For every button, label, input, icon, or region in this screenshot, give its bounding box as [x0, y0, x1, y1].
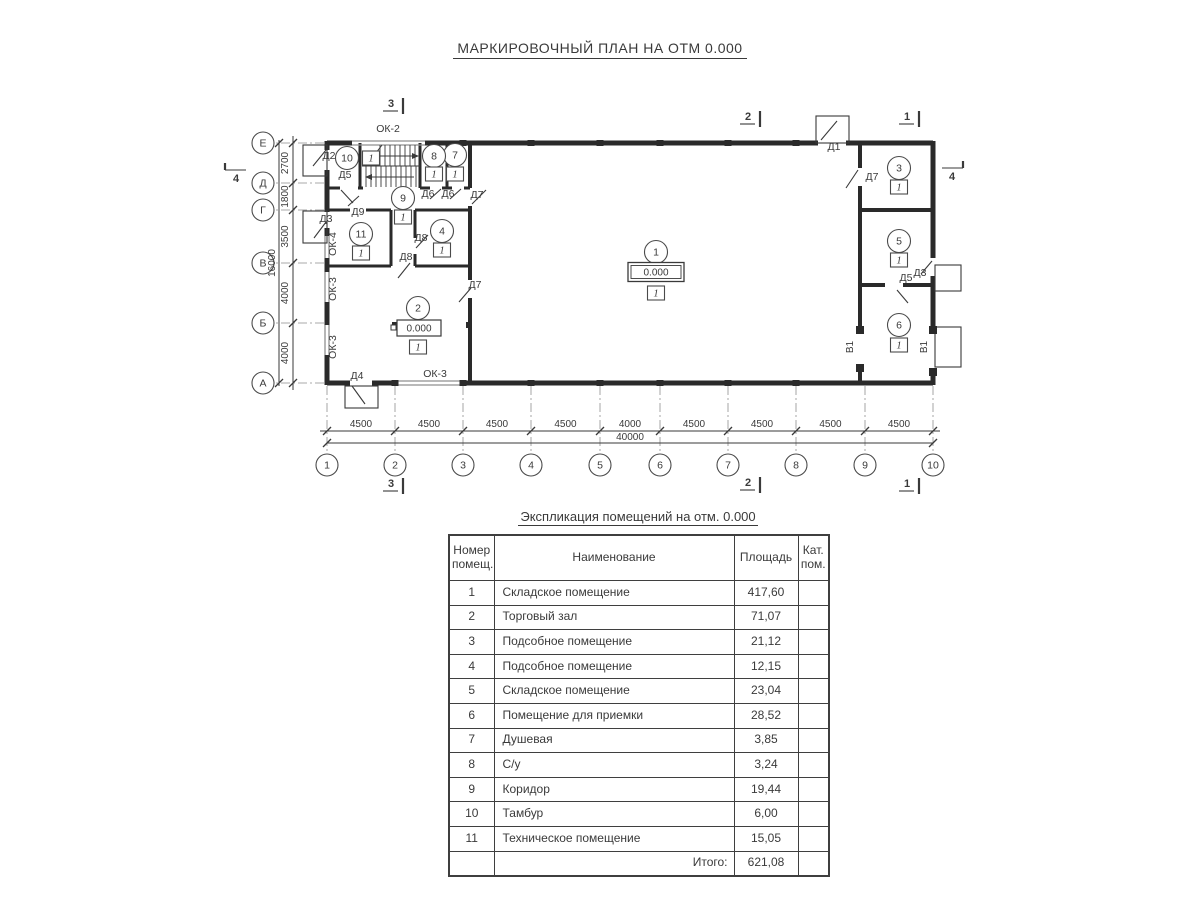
section-mark-number: 3 — [388, 478, 394, 490]
door-label: Д7 — [866, 171, 879, 183]
column-tick — [460, 380, 467, 386]
table-cell-area: 23,04 — [734, 679, 798, 704]
door-label: Д3 — [914, 267, 927, 279]
table-row: 7Душевая3,85 — [449, 728, 829, 753]
room-category: 1 — [896, 256, 901, 267]
table-cell-area: 12,15 — [734, 654, 798, 679]
room-category: 1 — [439, 246, 444, 257]
drawing-sheet: МАРКИРОВОЧНЫЙ ПЛАН НА ОТМ 0.000 110.0002… — [0, 0, 1200, 900]
door-label: Д2 — [323, 150, 336, 162]
table-cell-name: Складское помещение — [494, 581, 734, 606]
axis-label-left: Г — [260, 205, 266, 217]
entrance-platform — [816, 116, 849, 143]
table-cell-cat — [798, 679, 829, 704]
column-tick — [725, 140, 732, 146]
table-header-cell: Номер помещ. — [449, 535, 494, 581]
elevation-value: 0.000 — [406, 323, 431, 334]
column-tick — [657, 140, 664, 146]
table-cell-area: 417,60 — [734, 581, 798, 606]
table-cell-cat — [798, 826, 829, 851]
table-cell-cat — [798, 605, 829, 630]
section-mark-number: 3 — [388, 98, 394, 110]
table-row: 11Техническое помещение15,05 — [449, 826, 829, 851]
axis-label-left: Е — [259, 138, 266, 150]
dim-value: 1800 — [280, 185, 291, 208]
table-cell-num: 5 — [449, 679, 494, 704]
section-mark-number: 1 — [904, 478, 910, 490]
section-mark-number: 2 — [745, 111, 751, 123]
table-cell-area: 6,00 — [734, 802, 798, 827]
table-cell-num: 9 — [449, 777, 494, 802]
table-cell-name: Подсобное помещение — [494, 654, 734, 679]
table-row: 9Коридор19,44 — [449, 777, 829, 802]
table-cell-name: Тамбур — [494, 802, 734, 827]
explication-table-body: 1Складское помещение417,602Торговый зал7… — [449, 581, 829, 877]
dim-value: 4500 — [751, 419, 774, 430]
room-number: 10 — [341, 153, 353, 165]
door-leaf — [398, 263, 410, 278]
column-tick — [528, 140, 535, 146]
room-category: 1 — [358, 249, 363, 260]
room-category: 1 — [452, 170, 457, 181]
dim-value: 4000 — [280, 281, 291, 304]
door-leaf — [352, 386, 365, 404]
door-label: Д7 — [471, 189, 484, 201]
table-cell-cat — [798, 728, 829, 753]
room-category: 1 — [415, 343, 420, 354]
axis-label-bottom: 8 — [793, 460, 799, 472]
table-row: 4Подсобное помещение12,15 — [449, 654, 829, 679]
explication-table: Номер помещ.НаименованиеПлощадьКат. пом.… — [448, 534, 830, 877]
axis-label-left: А — [259, 378, 266, 390]
table-row: 10Тамбур6,00 — [449, 802, 829, 827]
table-total-cell: Итого: — [494, 851, 734, 876]
dim-total: 16000 — [267, 249, 278, 277]
window-label: ОК-3 — [423, 368, 447, 380]
table-cell-num: 1 — [449, 581, 494, 606]
dim-value: 3500 — [280, 225, 291, 248]
room-category: 1 — [653, 289, 658, 300]
dim-value: 4500 — [554, 419, 577, 430]
entrance-platform — [345, 386, 378, 408]
table-header-cell: Наименование — [494, 535, 734, 581]
door-leaf — [897, 290, 908, 303]
table-cell-area: 3,85 — [734, 728, 798, 753]
table-cell-num: 8 — [449, 753, 494, 778]
table-empty-cell — [798, 851, 829, 876]
table-total-cell: 621,08 — [734, 851, 798, 876]
column-tick — [597, 380, 604, 386]
door-leaf — [341, 190, 353, 203]
gate-jamb — [856, 364, 864, 372]
entrance-platform — [935, 265, 961, 291]
table-total-row: Итого:621,08 — [449, 851, 829, 876]
window-label: ОК-4 — [327, 232, 339, 256]
door-label: Д4 — [351, 370, 364, 382]
room-category: 1 — [431, 170, 436, 181]
table-cell-area: 19,44 — [734, 777, 798, 802]
table-row: 8С/у3,24 — [449, 753, 829, 778]
table-cell-name: Складское помещение — [494, 679, 734, 704]
table-cell-cat — [798, 753, 829, 778]
door-label: Д6 — [442, 188, 455, 200]
axis-label-bottom: 2 — [392, 460, 398, 472]
dim-value: 4500 — [683, 419, 706, 430]
elevation-leader-square — [391, 325, 396, 330]
door-label: Д8 — [400, 251, 413, 263]
table-row: 1Складское помещение417,60 — [449, 581, 829, 606]
axis-label-bottom: 10 — [927, 460, 939, 472]
door-label: Д5 — [339, 169, 352, 181]
axis-label-bottom: 1 — [324, 460, 330, 472]
room-number: 6 — [896, 320, 902, 332]
room-number: 5 — [896, 236, 902, 248]
explication-table-head: Номер помещ.НаименованиеПлощадьКат. пом. — [449, 535, 829, 581]
column-tick — [793, 140, 800, 146]
door-leaf — [846, 170, 858, 188]
table-cell-num: 3 — [449, 630, 494, 655]
table-cell-name: С/у — [494, 753, 734, 778]
table-cell-cat — [798, 581, 829, 606]
door-label: Д1 — [828, 141, 841, 153]
door-label: Д8 — [415, 232, 428, 244]
dim-value: 4500 — [819, 419, 842, 430]
room-category: 1 — [896, 183, 901, 194]
elevation-value: 0.000 — [643, 267, 668, 278]
dim-value: 4000 — [619, 419, 642, 430]
table-cell-name: Техническое помещение — [494, 826, 734, 851]
axis-label-bottom: 3 — [460, 460, 466, 472]
axis-label-bottom: 9 — [862, 460, 868, 472]
dim-value: 4500 — [350, 419, 373, 430]
table-row: 6Помещение для приемки28,52 — [449, 703, 829, 728]
axis-label-bottom: 6 — [657, 460, 663, 472]
door-label: Д9 — [352, 206, 365, 218]
room-number: 3 — [896, 163, 902, 175]
table-cell-cat — [798, 654, 829, 679]
gate-jamb — [856, 326, 864, 334]
axis-label-left: Д — [259, 178, 266, 190]
column-tick — [725, 380, 732, 386]
table-cell-cat — [798, 630, 829, 655]
dim-value: 4500 — [888, 419, 911, 430]
section-mark-number: 4 — [949, 171, 956, 183]
table-cell-area: 71,07 — [734, 605, 798, 630]
table-cell-cat — [798, 777, 829, 802]
room-number: 1 — [653, 247, 659, 259]
room-number: 4 — [439, 226, 445, 238]
explication-title: Экспликация помещений на отм. 0.000 — [448, 508, 828, 526]
gate-jamb — [929, 368, 937, 376]
room-number: 7 — [452, 150, 458, 162]
column-tick — [528, 380, 535, 386]
axis-label-bottom: 5 — [597, 460, 603, 472]
table-cell-area: 3,24 — [734, 753, 798, 778]
gate-label: В1 — [919, 340, 930, 353]
window-label: ОК-3 — [327, 277, 339, 301]
explication-title-text: Экспликация помещений на отм. 0.000 — [518, 509, 757, 526]
axis-label-left: В — [259, 258, 266, 270]
dim-value: 4500 — [486, 419, 509, 430]
window-label: ОК-3 — [327, 335, 339, 359]
table-cell-name: Душевая — [494, 728, 734, 753]
table-cell-area: 15,05 — [734, 826, 798, 851]
section-mark-number: 1 — [904, 111, 910, 123]
table-header-cell: Кат. пом. — [798, 535, 829, 581]
table-empty-cell — [449, 851, 494, 876]
table-cell-area: 28,52 — [734, 703, 798, 728]
table-cell-name: Подсобное помещение — [494, 630, 734, 655]
window-label: ОК-2 — [376, 123, 400, 135]
table-cell-name: Торговый зал — [494, 605, 734, 630]
door-label: Д6 — [422, 188, 435, 200]
dim-value: 4000 — [280, 341, 291, 364]
column-tick — [466, 322, 472, 328]
door-label: Д7 — [469, 279, 482, 291]
table-cell-num: 11 — [449, 826, 494, 851]
table-row: 2Торговый зал71,07 — [449, 605, 829, 630]
section-mark-number: 2 — [745, 477, 751, 489]
table-row: 5Складское помещение23,04 — [449, 679, 829, 704]
table-cell-cat — [798, 703, 829, 728]
floor-plan: 110.000210.00031415161718191101111Д2Д5Д9… — [0, 0, 1200, 505]
room-number: 2 — [415, 303, 421, 315]
room-category: 1 — [368, 154, 373, 165]
room-number: 11 — [356, 229, 367, 241]
room-category: 1 — [400, 213, 405, 224]
column-tick — [793, 380, 800, 386]
table-cell-cat — [798, 802, 829, 827]
gate-jamb — [929, 326, 937, 334]
axis-label-left: Б — [260, 318, 267, 330]
table-cell-num: 4 — [449, 654, 494, 679]
table-cell-name: Помещение для приемки — [494, 703, 734, 728]
axis-label-bottom: 4 — [528, 460, 534, 472]
stair-arrow-head — [412, 153, 419, 159]
axis-label-bottom: 7 — [725, 460, 731, 472]
room-category: 1 — [896, 341, 901, 352]
dim-value: 4500 — [418, 419, 441, 430]
gate-label: В1 — [845, 340, 856, 353]
dim-total: 40000 — [616, 432, 644, 443]
door-leaf — [348, 196, 359, 206]
column-tick — [657, 380, 664, 386]
table-cell-area: 21,12 — [734, 630, 798, 655]
table-cell-name: Коридор — [494, 777, 734, 802]
table-row: 3Подсобное помещение21,12 — [449, 630, 829, 655]
table-cell-num: 6 — [449, 703, 494, 728]
section-mark-number: 4 — [233, 173, 240, 185]
column-tick — [597, 140, 604, 146]
table-header-cell: Площадь — [734, 535, 798, 581]
table-cell-num: 7 — [449, 728, 494, 753]
entrance-platform — [935, 327, 961, 367]
room-number: 8 — [431, 151, 437, 163]
door-leaf — [821, 121, 837, 140]
room-number: 9 — [400, 193, 406, 205]
dim-value: 2700 — [280, 151, 291, 174]
door-label: Д5 — [900, 272, 913, 284]
door-label: Д3 — [320, 213, 333, 225]
table-cell-num: 10 — [449, 802, 494, 827]
column-tick — [392, 380, 399, 386]
table-cell-num: 2 — [449, 605, 494, 630]
table-header-row: Номер помещ.НаименованиеПлощадьКат. пом. — [449, 535, 829, 581]
